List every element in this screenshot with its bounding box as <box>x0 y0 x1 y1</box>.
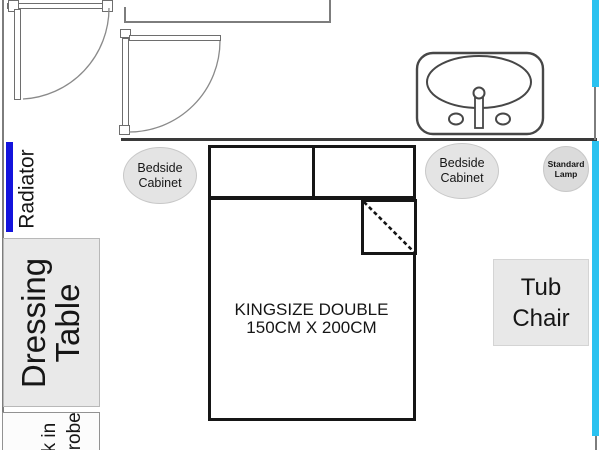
tub-chair-line2: Chair <box>512 303 569 334</box>
sink-icon <box>410 45 550 140</box>
bedside-left-line1: Bedside <box>137 161 182 176</box>
standard-lamp-line1: Standard <box>548 159 585 169</box>
door1-latch-block <box>102 0 113 12</box>
dressing-table-line1: Dressing <box>18 257 52 387</box>
bedside-right-line1: Bedside <box>439 156 484 171</box>
bedside-right-line2: Cabinet <box>439 171 484 186</box>
bed-label-line2: 150CM X 200CM <box>209 319 414 337</box>
bed-fold-diagonal <box>364 202 414 252</box>
door1-swing-arc <box>23 8 109 99</box>
bedside-left-line2: Cabinet <box>137 176 182 191</box>
wardrobe-line2: Wardrobe <box>62 412 87 450</box>
bedside-cabinet-right: Bedside Cabinet <box>425 143 499 199</box>
alcove-corner-wall <box>329 0 331 22</box>
sink-basin <box>427 56 531 108</box>
sink-faucet-head <box>474 88 485 99</box>
window-top-right <box>592 0 599 87</box>
dressing-table-label: Dressing Table <box>18 257 86 387</box>
sink-faucet-stem <box>475 97 483 128</box>
dressing-table: Dressing Table <box>3 238 100 407</box>
bedside-cabinet-left: Bedside Cabinet <box>123 147 197 204</box>
right-wall-upper <box>594 86 596 140</box>
sink-tap-left <box>449 114 463 125</box>
sink-tap-right <box>496 114 510 125</box>
bed-label-line1: KINGSIZE DOUBLE <box>209 301 414 319</box>
door1-frame <box>7 3 108 9</box>
window-right <box>592 141 599 436</box>
alcove-wall-horizontal <box>124 21 331 23</box>
tub-chair-line1: Tub <box>512 272 569 303</box>
door2-leaf <box>122 38 129 126</box>
bed-label: KINGSIZE DOUBLE 150CM X 200CM <box>209 301 414 336</box>
bedroom-top-wall <box>121 138 597 141</box>
radiator-label: Radiator <box>12 145 43 232</box>
bed-folded-corner <box>361 199 417 255</box>
door2-swing-arc <box>129 41 220 132</box>
radiator-label-text: Radiator <box>16 149 40 228</box>
dressing-table-line2: Table <box>52 257 86 387</box>
wardrobe-label: Walk in Wardrobe <box>37 412 87 450</box>
bed-pillow-divider-vertical <box>312 145 315 200</box>
tub-chair: Tub Chair <box>493 259 589 346</box>
walk-in-wardrobe: Walk in Wardrobe <box>2 412 100 450</box>
right-wall-lower <box>595 436 597 450</box>
door2-latch-block <box>119 125 130 135</box>
sink-body <box>417 53 543 134</box>
standard-lamp-line2: Lamp <box>548 169 585 179</box>
wardrobe-line1: Walk in <box>37 412 62 450</box>
standard-lamp: Standard Lamp <box>543 146 589 192</box>
door1-leaf <box>14 9 21 100</box>
alcove-wall-vertical <box>124 7 126 22</box>
bedroom-floor-plan: Radiator KINGSIZE DOUBLE 150CM X 200CM <box>0 0 600 450</box>
door2-frame <box>129 35 221 41</box>
